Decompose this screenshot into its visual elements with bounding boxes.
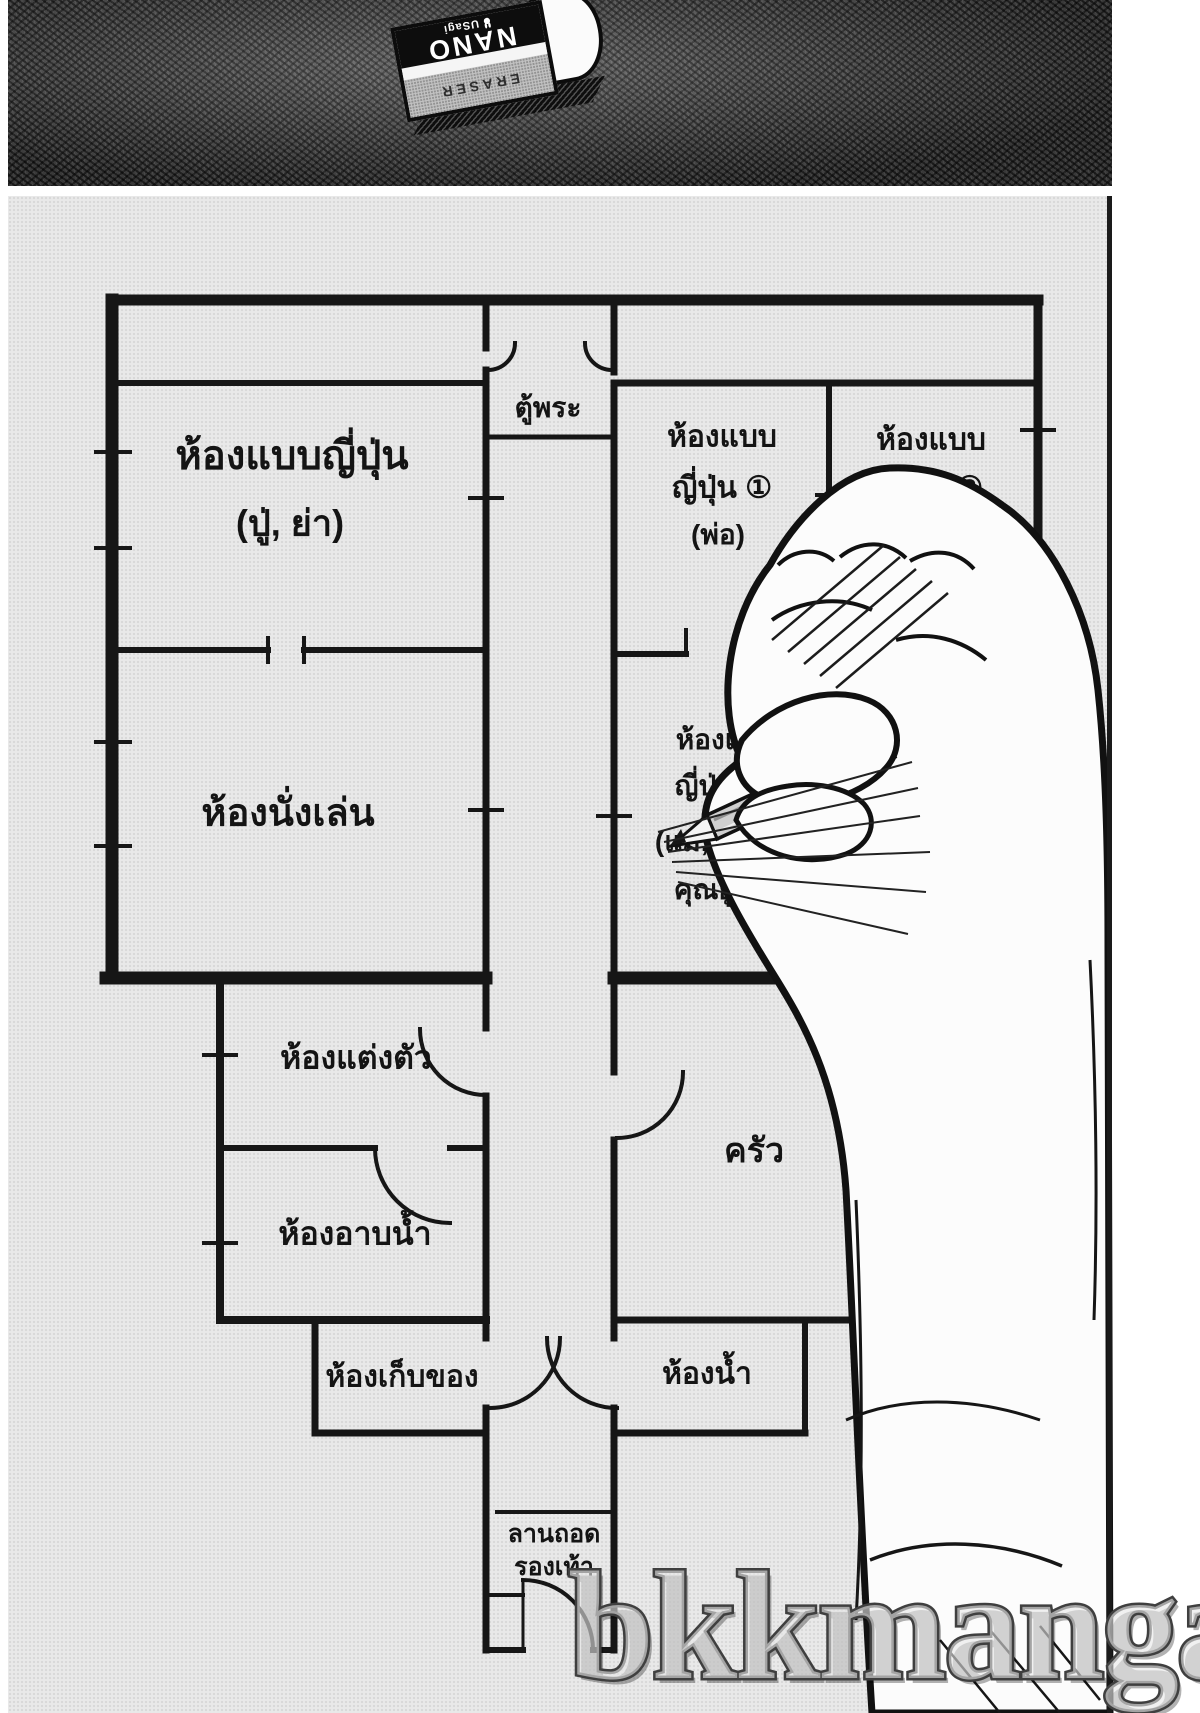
watermark: bkkmanga bkkmanga [0, 1520, 1200, 1713]
watermark-text: bkkmanga [568, 1540, 1200, 1712]
manga-page: NANO USagi ERASER [0, 0, 1200, 1713]
hand-illustration [0, 0, 1200, 1713]
panel-right-border [1107, 196, 1112, 1713]
